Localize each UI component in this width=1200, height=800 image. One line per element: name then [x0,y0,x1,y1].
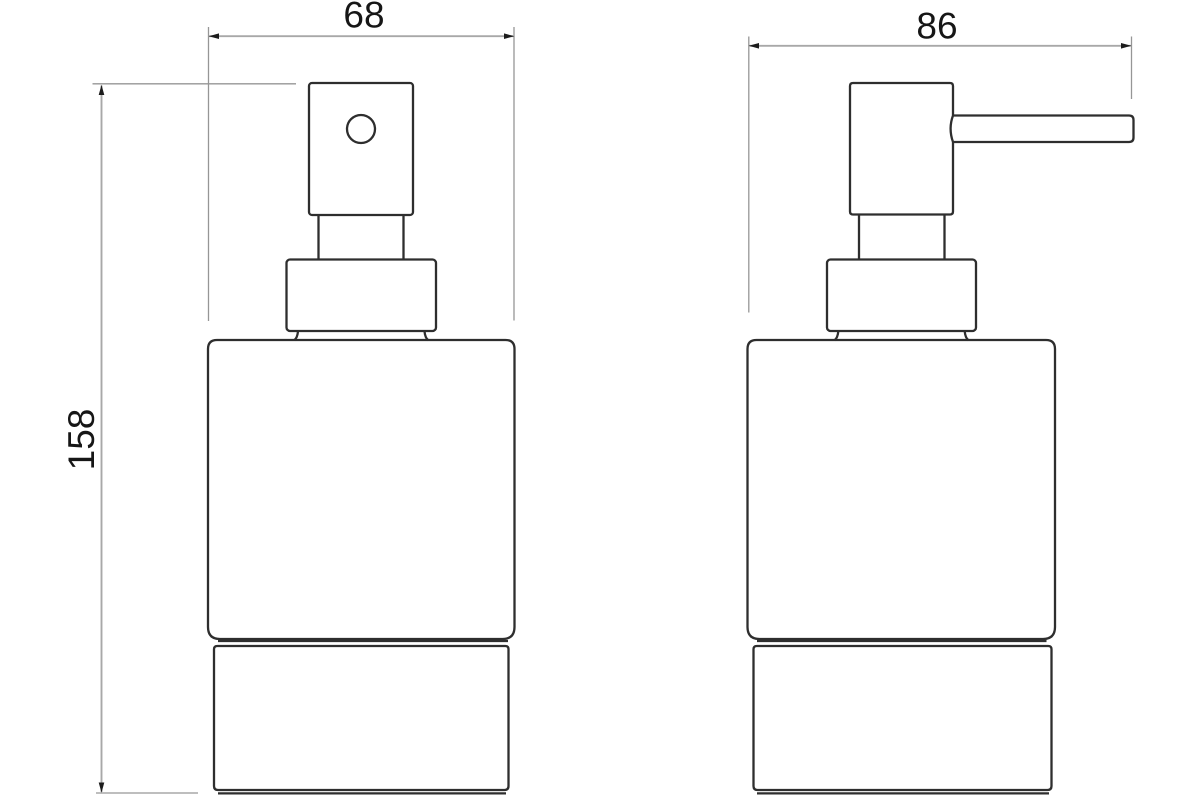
svg-text:68: 68 [343,0,384,36]
svg-text:86: 86 [916,6,957,47]
svg-text:158: 158 [61,409,102,471]
